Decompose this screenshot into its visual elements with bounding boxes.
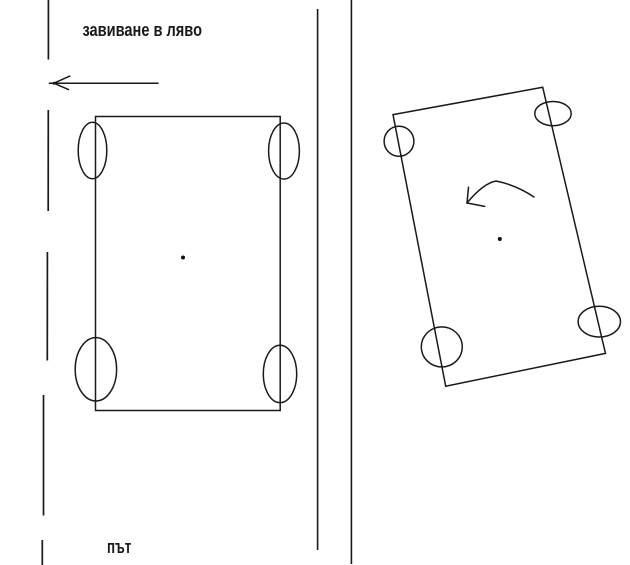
- svg-text:път: път: [107, 537, 131, 557]
- svg-text:завиване в ляво: завиване в ляво: [83, 20, 203, 40]
